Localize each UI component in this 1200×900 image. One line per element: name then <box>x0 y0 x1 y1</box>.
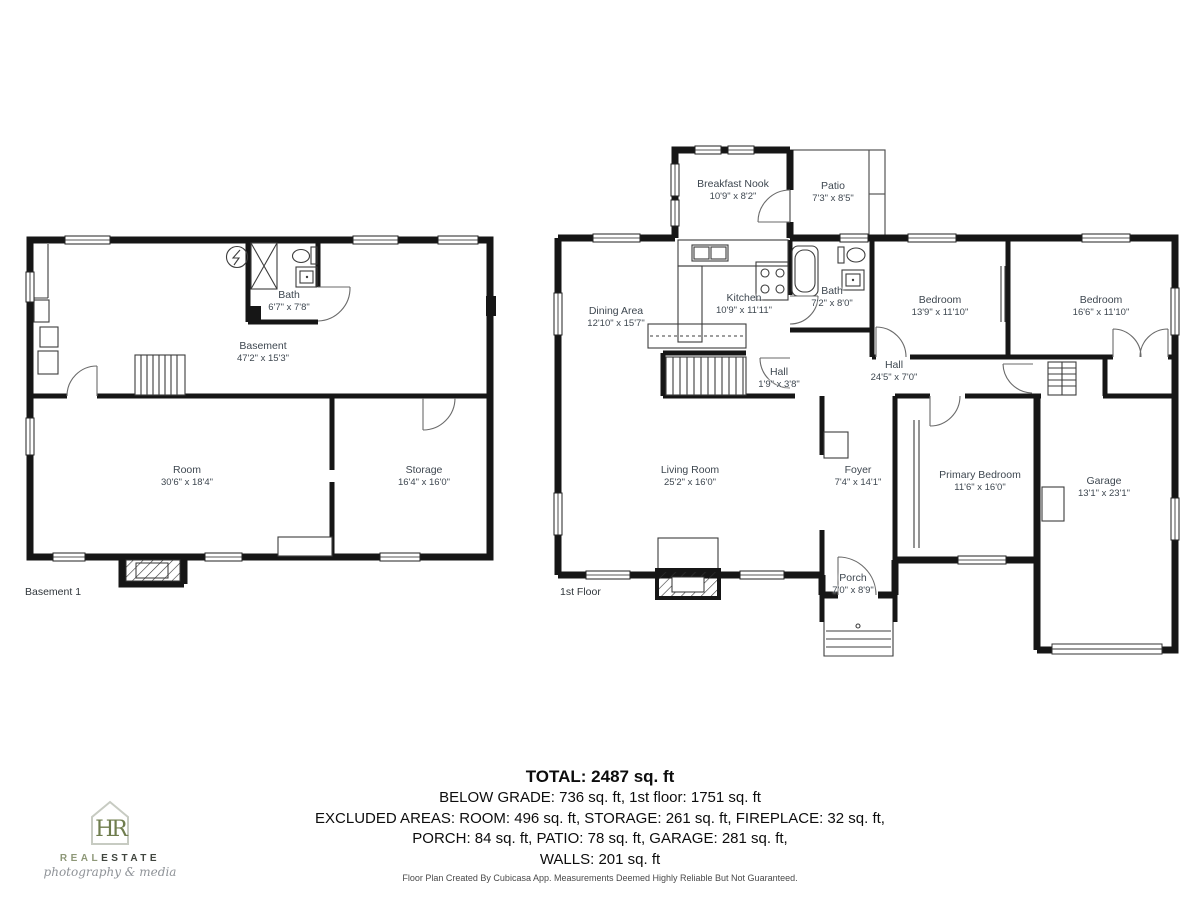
logo-monogram: HR <box>95 817 129 842</box>
real-estate-logo: HR REALESTATE photography & media <box>30 800 190 879</box>
room-label-porch: Porch 7'0" x 8'9" <box>832 572 874 596</box>
basement-fireplace-icon <box>278 537 332 556</box>
garage-door-icon <box>1052 644 1162 654</box>
basement-plan <box>26 236 496 584</box>
room-label-basement: Basement 47'2" x 15'3" <box>237 340 289 364</box>
room-label-storage: Storage 16'4" x 16'0" <box>398 464 450 488</box>
logo-wordmark: REALESTATE <box>30 853 190 864</box>
stairs-icon <box>135 355 185 395</box>
room-label-kitchen: Kitchen 10'9" x 11'11" <box>716 292 772 316</box>
bulkhead-stairs-icon <box>122 557 184 584</box>
room-label-garage: Garage 13'1" x 23'1" <box>1078 475 1130 499</box>
total-area: TOTAL: 2487 sq. ft <box>0 766 1200 788</box>
basement-stairs-icon <box>1048 362 1076 395</box>
main-stairs-icon <box>666 357 746 395</box>
room-label-living: Living Room 25'2" x 16'0" <box>661 464 719 488</box>
floor-label-basement: Basement 1 <box>25 586 81 598</box>
room-label-foyer: Foyer 7'4" x 14'1" <box>835 464 882 488</box>
logo-house-icon: HR <box>30 800 190 846</box>
room-label-bedroom2: Bedroom 16'6" x 11'10" <box>1073 294 1130 318</box>
logo-tagline: photography & media <box>30 865 190 879</box>
room-label-hall-small: Hall 1'9" x 3'8" <box>758 366 800 390</box>
room-label-breakfast-nook: Breakfast Nook 10'9" x 8'2" <box>697 178 769 202</box>
floor-plan-drawing <box>0 0 1200 900</box>
floor-plan-page: Bath 6'7" x 7'8" Basement 47'2" x 15'3" … <box>0 0 1200 900</box>
room-label-basement-bath: Bath 6'7" x 7'8" <box>268 289 310 313</box>
chimney-notch <box>486 296 496 316</box>
room-label-dining: Dining Area 12'10" x 15'7" <box>587 305 644 329</box>
room-label-hall: Hall 24'5" x 7'0" <box>871 359 918 383</box>
room-label-bedroom1: Bedroom 13'9" x 11'10" <box>912 294 969 318</box>
room-label-room: Room 30'6" x 18'4" <box>161 464 213 488</box>
room-label-patio: Patio 7'3" x 8'5" <box>812 180 854 204</box>
room-label-bath1: Bath 7'2" x 8'0" <box>811 285 853 309</box>
room-label-primary-bedroom: Primary Bedroom 11'6" x 16'0" <box>939 469 1021 493</box>
floor-label-first: 1st Floor <box>560 586 601 598</box>
